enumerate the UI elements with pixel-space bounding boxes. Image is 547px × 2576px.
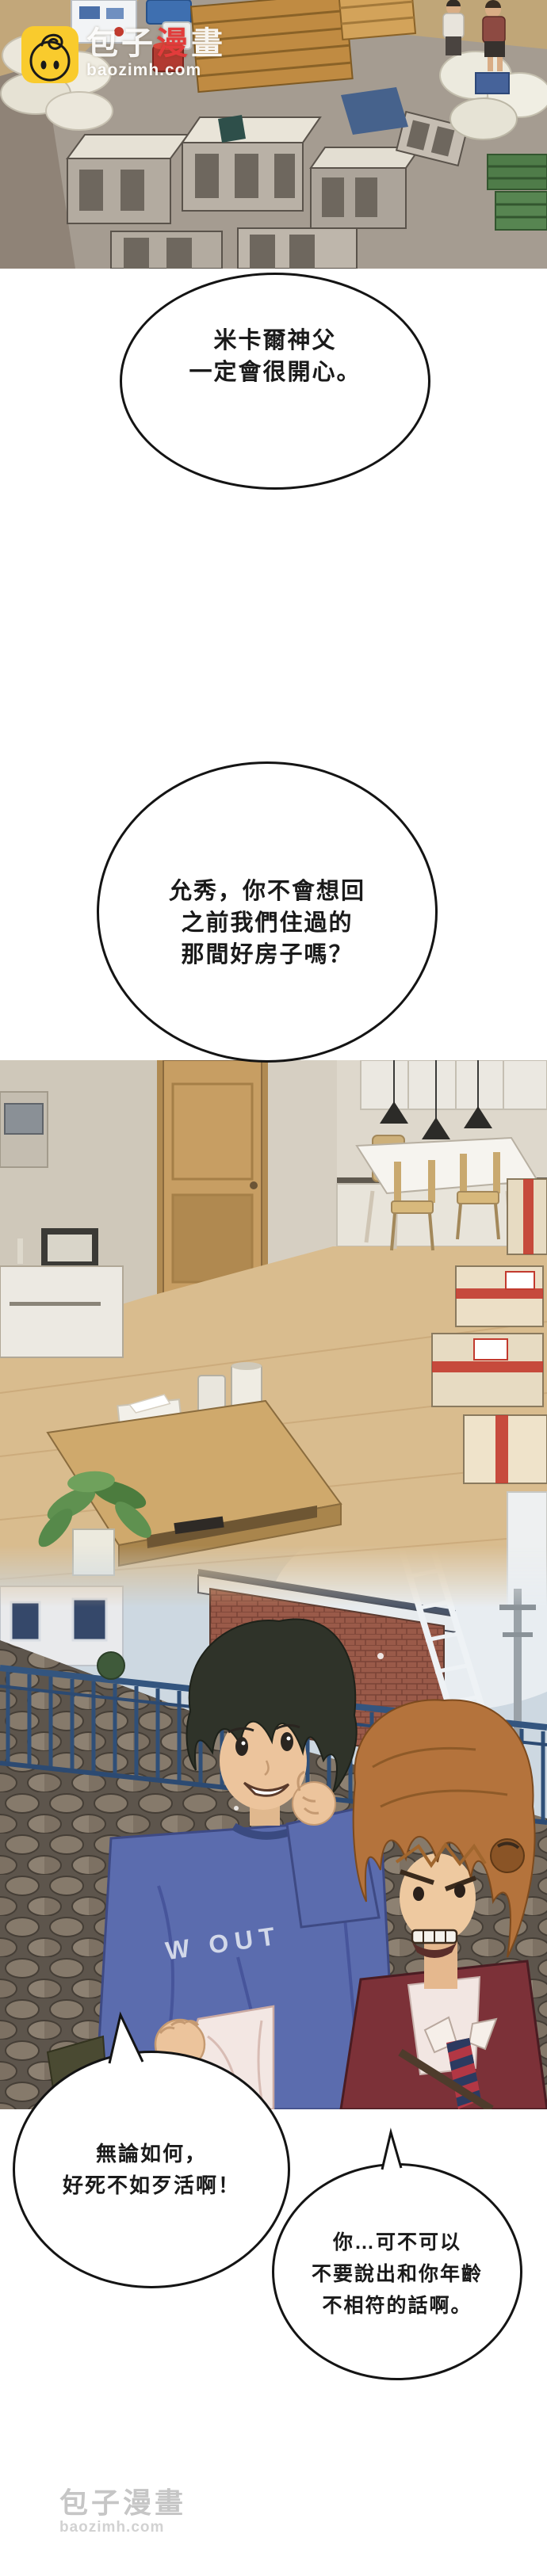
watermark-bottom-domain: baozimh.com (59, 2519, 186, 2536)
bubble-4-line: 不要說出和你年齡 (274, 2258, 520, 2290)
speech-bubble-3: 無論如何， 好死不如歹活啊！ (13, 2051, 290, 2288)
bubble-2-line: 那間好房子嗎？ (99, 939, 435, 971)
teal-cloth (218, 115, 246, 143)
panel-3-street: W OUT (0, 1545, 547, 2109)
watermark-brand: 包子漫畫 (86, 26, 226, 61)
speech-bubble-4: 你…可不可以 不要說出和你年齡 不相符的話啊。 (272, 2163, 522, 2380)
bubble-2-line: 之前我們住過的 (99, 907, 435, 939)
bubble-4-line: 你…可不可以 (274, 2227, 520, 2258)
speech-bubble-3-tail (95, 2009, 159, 2068)
green-bin (98, 1652, 124, 1679)
speech-bubble-1: 米卡爾神父 一定會很開心。 (120, 273, 430, 490)
speech-bubble-4-tail (373, 2126, 412, 2173)
bubble-3-line: 好死不如歹活啊！ (15, 2170, 288, 2201)
watermark-bottom-brand: 包子漫畫 (59, 2487, 186, 2519)
site-watermark-bottom: 包子漫畫 baozimh.com (59, 2487, 186, 2536)
interior-scene (0, 1060, 547, 1609)
speech-bubble-2: 允秀，你不會想回 之前我們住過的 那間好房子嗎？ (97, 761, 438, 1063)
baozi-logo-icon (21, 26, 78, 83)
bubble-4-line: 不相符的話啊。 (274, 2290, 520, 2322)
panel-2-interior (0, 1060, 547, 1609)
street-scene: W OUT (0, 1545, 547, 2109)
watermark-domain: baozimh.com (86, 61, 226, 80)
bubble-2-line: 允秀，你不會想回 (99, 876, 435, 907)
blue-tarp (341, 87, 408, 135)
bubble-1-line: 米卡爾神父 (122, 325, 428, 357)
bubble-1-line: 一定會很開心。 (122, 357, 428, 388)
bubble-3-line: 無論如何， (15, 2138, 288, 2170)
site-watermark-top: 包子漫畫 baozimh.com (21, 26, 226, 83)
comic-page: W OUT (0, 0, 547, 2576)
